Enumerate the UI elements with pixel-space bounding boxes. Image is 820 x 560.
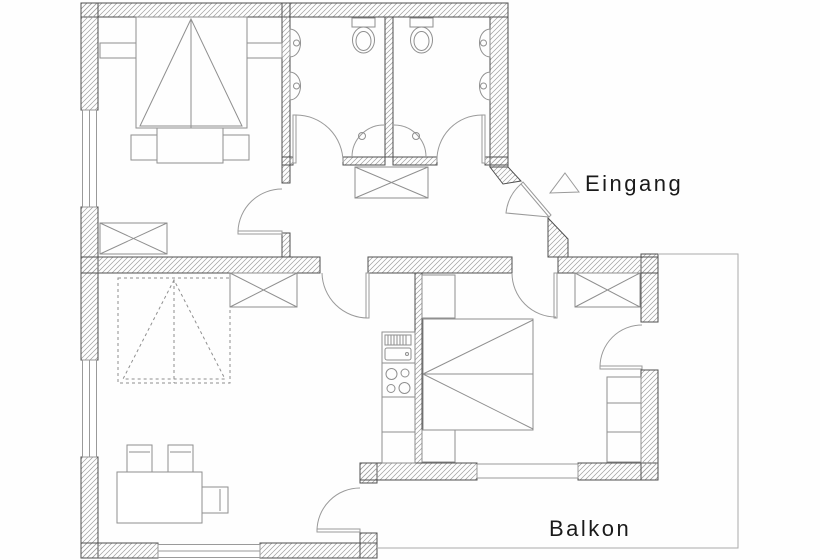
right-wall-lower xyxy=(641,370,658,480)
wardrobe-bedroom2 xyxy=(575,273,640,307)
door-livingroom-leaf xyxy=(366,273,369,318)
shower-1 xyxy=(352,125,384,157)
wardrobe-bedroom1 xyxy=(100,223,167,254)
kitchen-wall xyxy=(415,273,422,463)
entrance-diagonal-wall xyxy=(490,167,568,257)
nightstand-1-right xyxy=(247,43,282,58)
entrance-label: Eingang xyxy=(585,171,683,196)
door-bedroom2-balcony xyxy=(600,325,642,369)
bathroom-bottom-wall-1 xyxy=(282,157,293,165)
dining-table xyxy=(117,472,202,523)
door-livingroom-balcony-leaf xyxy=(317,529,360,532)
wardrobe-livingroom xyxy=(230,273,297,307)
bathroom-bottom-wall-3 xyxy=(393,157,437,165)
door-livingroom-balcony-swing xyxy=(317,488,360,531)
middle-wall-left xyxy=(81,257,320,273)
bedroom1-furniture xyxy=(100,17,282,254)
wardrobe-hall xyxy=(355,167,428,198)
bottom-wall-right xyxy=(260,543,377,558)
toilet-2-cistern xyxy=(410,18,433,27)
washbasin-2b xyxy=(480,72,491,100)
toilet-1-cistern xyxy=(352,18,375,27)
chair-1a xyxy=(131,135,157,160)
door-entrance xyxy=(506,182,551,217)
washbasin-1a xyxy=(290,29,301,57)
left-wall-upper xyxy=(81,3,98,110)
shelf-bedroom2 xyxy=(607,377,641,462)
top-wall xyxy=(81,3,508,17)
apartment-floorplan: Eingang Balkon xyxy=(0,0,820,560)
door-livingroom-balcony xyxy=(317,488,360,532)
middle-wall-center xyxy=(368,257,512,273)
bedroom1-right-wall-block xyxy=(282,233,290,257)
bathroom-bottom-wall-2 xyxy=(343,157,385,165)
door-bathroom1 xyxy=(293,115,343,163)
entrance-marker-triangle-icon xyxy=(550,173,579,193)
bathroom1-fixtures xyxy=(290,18,384,157)
door-bedroom1-leaf xyxy=(238,231,282,234)
door-bedroom2-balcony-swing xyxy=(600,325,642,367)
step-wall-lower xyxy=(360,533,377,558)
chair-1b xyxy=(223,135,249,160)
table-1 xyxy=(157,128,223,163)
oven xyxy=(385,335,411,360)
bedroom1-right-wall xyxy=(282,3,290,183)
door-bedroom1-swing xyxy=(238,189,282,231)
balcony-label: Balkon xyxy=(549,516,631,541)
door-bedroom2-leaf xyxy=(554,273,557,318)
livingroom-furniture xyxy=(117,273,297,523)
door-livingroom xyxy=(322,273,369,318)
entrance-jamb-upper xyxy=(490,167,521,184)
stove-burners xyxy=(386,369,410,394)
nightstand-2-bottom xyxy=(422,430,455,462)
door-bathroom2 xyxy=(437,115,485,163)
door-entrance-leaf xyxy=(521,182,551,217)
interior-walls xyxy=(282,3,508,463)
kitchen-unit xyxy=(382,332,415,463)
bathroom-bottom-wall-4 xyxy=(485,157,508,165)
door-bathroom2-swing xyxy=(437,115,482,162)
washbasin-1b xyxy=(290,72,301,100)
door-livingroom-swing xyxy=(322,273,368,318)
bathroom2-fixtures xyxy=(394,18,490,157)
bathroom-divider-wall xyxy=(385,17,393,157)
bottom-wall-left xyxy=(81,543,158,558)
door-bedroom2 xyxy=(512,273,557,318)
door-bathroom1-leaf xyxy=(293,115,296,163)
bedroom2-bottom-wall-left xyxy=(360,463,477,480)
left-wall-middle xyxy=(81,207,98,360)
door-bathroom2-leaf xyxy=(482,115,485,163)
entrance-jamb-lower xyxy=(548,218,568,257)
nightstand-1-left xyxy=(100,43,136,58)
floorplan-canvas: Eingang Balkon xyxy=(0,0,820,560)
washbasin-2a xyxy=(480,29,491,57)
hall-furniture xyxy=(355,167,428,198)
door-bedroom1 xyxy=(238,189,282,234)
bed-2-duvet xyxy=(423,320,533,429)
shower-2 xyxy=(394,125,426,157)
middle-wall-right xyxy=(558,257,658,273)
door-bathroom1-swing xyxy=(296,115,343,162)
sofa-bed-duvet xyxy=(123,280,225,383)
window-balcony-bedroom2 xyxy=(477,464,578,478)
door-bedroom2-swing xyxy=(512,273,556,317)
bed-1-duvet xyxy=(140,19,242,128)
middle-wall xyxy=(81,257,658,273)
nightstand-2-top xyxy=(422,275,455,318)
door-bedroom2-balcony-leaf xyxy=(600,366,642,369)
bathroom2-right-wall xyxy=(490,17,508,167)
